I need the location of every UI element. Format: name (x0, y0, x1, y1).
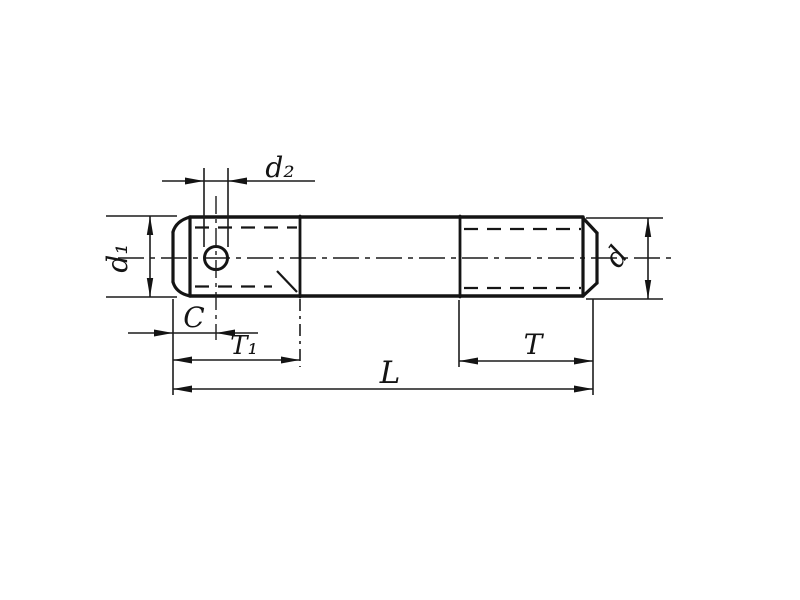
d2-arrow-left (185, 178, 204, 185)
l-arrow-right (574, 386, 593, 393)
l-arrow-left (173, 386, 192, 393)
dim-label-c: C (183, 301, 204, 334)
dim-label-t1: T₁ (230, 331, 258, 361)
t1-arrow-left (173, 357, 192, 364)
right-chamfer-top (583, 218, 597, 233)
left-chamfer-top (173, 217, 190, 232)
technical-drawing: d₂ d₁ d C (0, 0, 800, 600)
right-chamfer-bottom (583, 283, 597, 296)
c-arrow-left (154, 330, 173, 337)
dim-label-d1: d₁ (101, 243, 134, 272)
dim-label-t: T (524, 328, 545, 361)
d1-arrow-bottom (147, 278, 153, 297)
dim-label-d: d (598, 240, 635, 274)
t-arrow-right (574, 358, 593, 365)
thread-left (195, 228, 297, 287)
t-arrow-left (459, 358, 478, 365)
dim-label-d2: d₂ (265, 151, 294, 184)
left-chamfer-bottom (173, 282, 190, 296)
d1-arrow-top (147, 216, 153, 235)
d-arrow-bottom (645, 280, 651, 299)
t1-arrow-right (281, 357, 300, 364)
d2-arrow-right (228, 178, 247, 185)
drawing-page: d₂ d₁ d C (0, 0, 800, 600)
dim-label-l: L (379, 355, 401, 391)
d-arrow-top (645, 218, 651, 237)
left-thread-runout (277, 271, 297, 292)
